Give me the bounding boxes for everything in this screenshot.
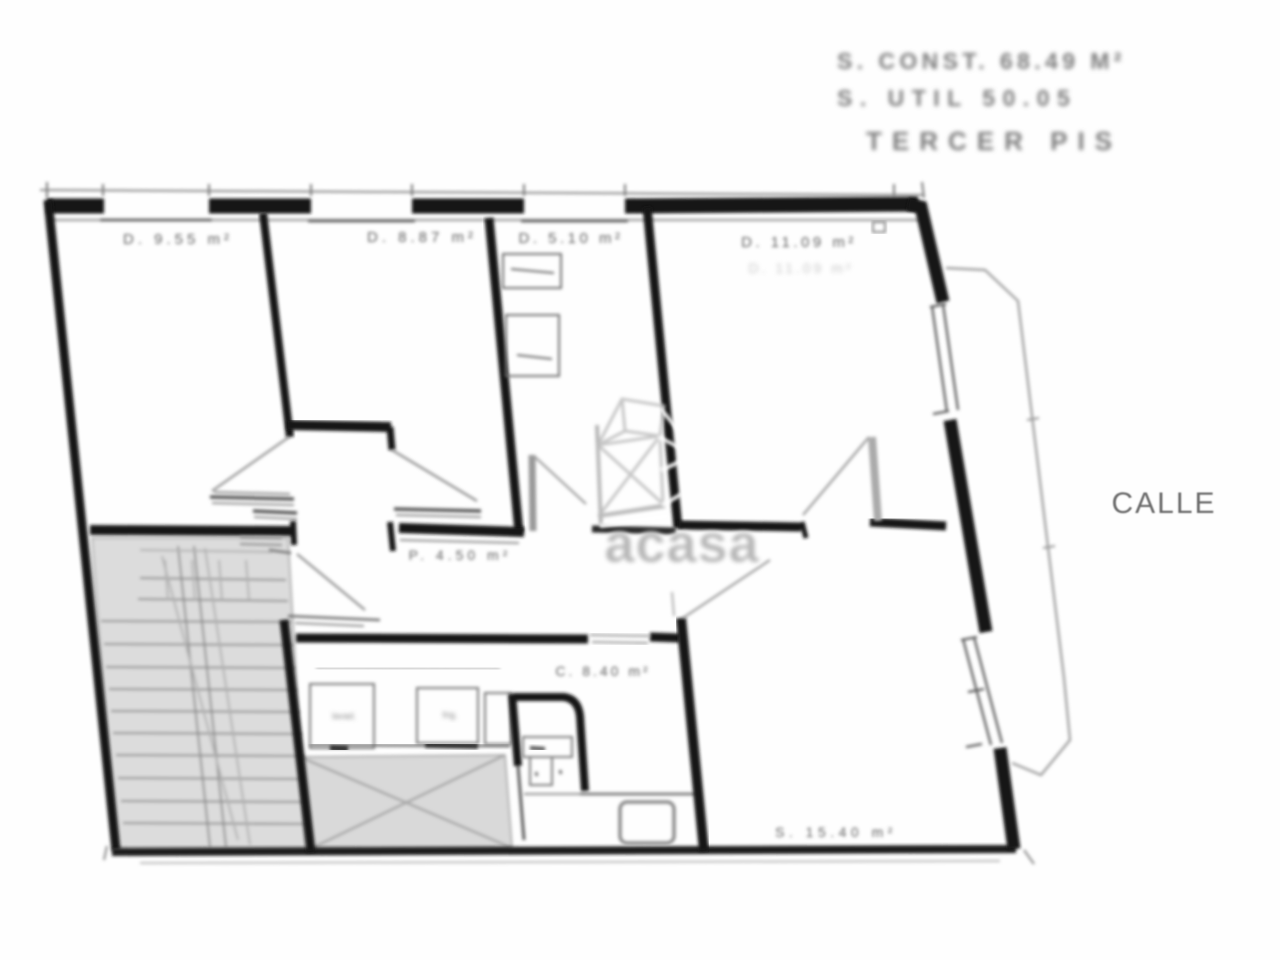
svg-text:S. 15.40 m²: S. 15.40 m² bbox=[775, 824, 897, 840]
svg-text:D. 11.09 m²: D. 11.09 m² bbox=[741, 234, 857, 251]
svg-text:D. 9.55 m²: D. 9.55 m² bbox=[123, 231, 233, 248]
svg-text:P. 4.50 m²: P. 4.50 m² bbox=[409, 547, 512, 563]
svg-text:C. 8.40 m²: C. 8.40 m² bbox=[555, 663, 650, 679]
svg-text:lavad.: lavad. bbox=[332, 711, 356, 721]
svg-text:D. 5.10 m²: D. 5.10 m² bbox=[518, 230, 623, 247]
svg-text:TERCER PIS: TERCER PIS bbox=[866, 126, 1122, 156]
svg-text:S. CONST. 68.49 M²: S. CONST. 68.49 M² bbox=[837, 48, 1126, 74]
svg-text:frig.: frig. bbox=[442, 710, 457, 720]
svg-text:D. 8.87 m²: D. 8.87 m² bbox=[367, 229, 477, 246]
svg-text:S. UTIL 50.05: S. UTIL 50.05 bbox=[837, 85, 1077, 111]
svg-text:D. 11.09 m²: D. 11.09 m² bbox=[748, 260, 853, 276]
svg-text:CALLE: CALLE bbox=[1111, 487, 1216, 520]
svg-text:acasa: acasa bbox=[604, 514, 759, 574]
